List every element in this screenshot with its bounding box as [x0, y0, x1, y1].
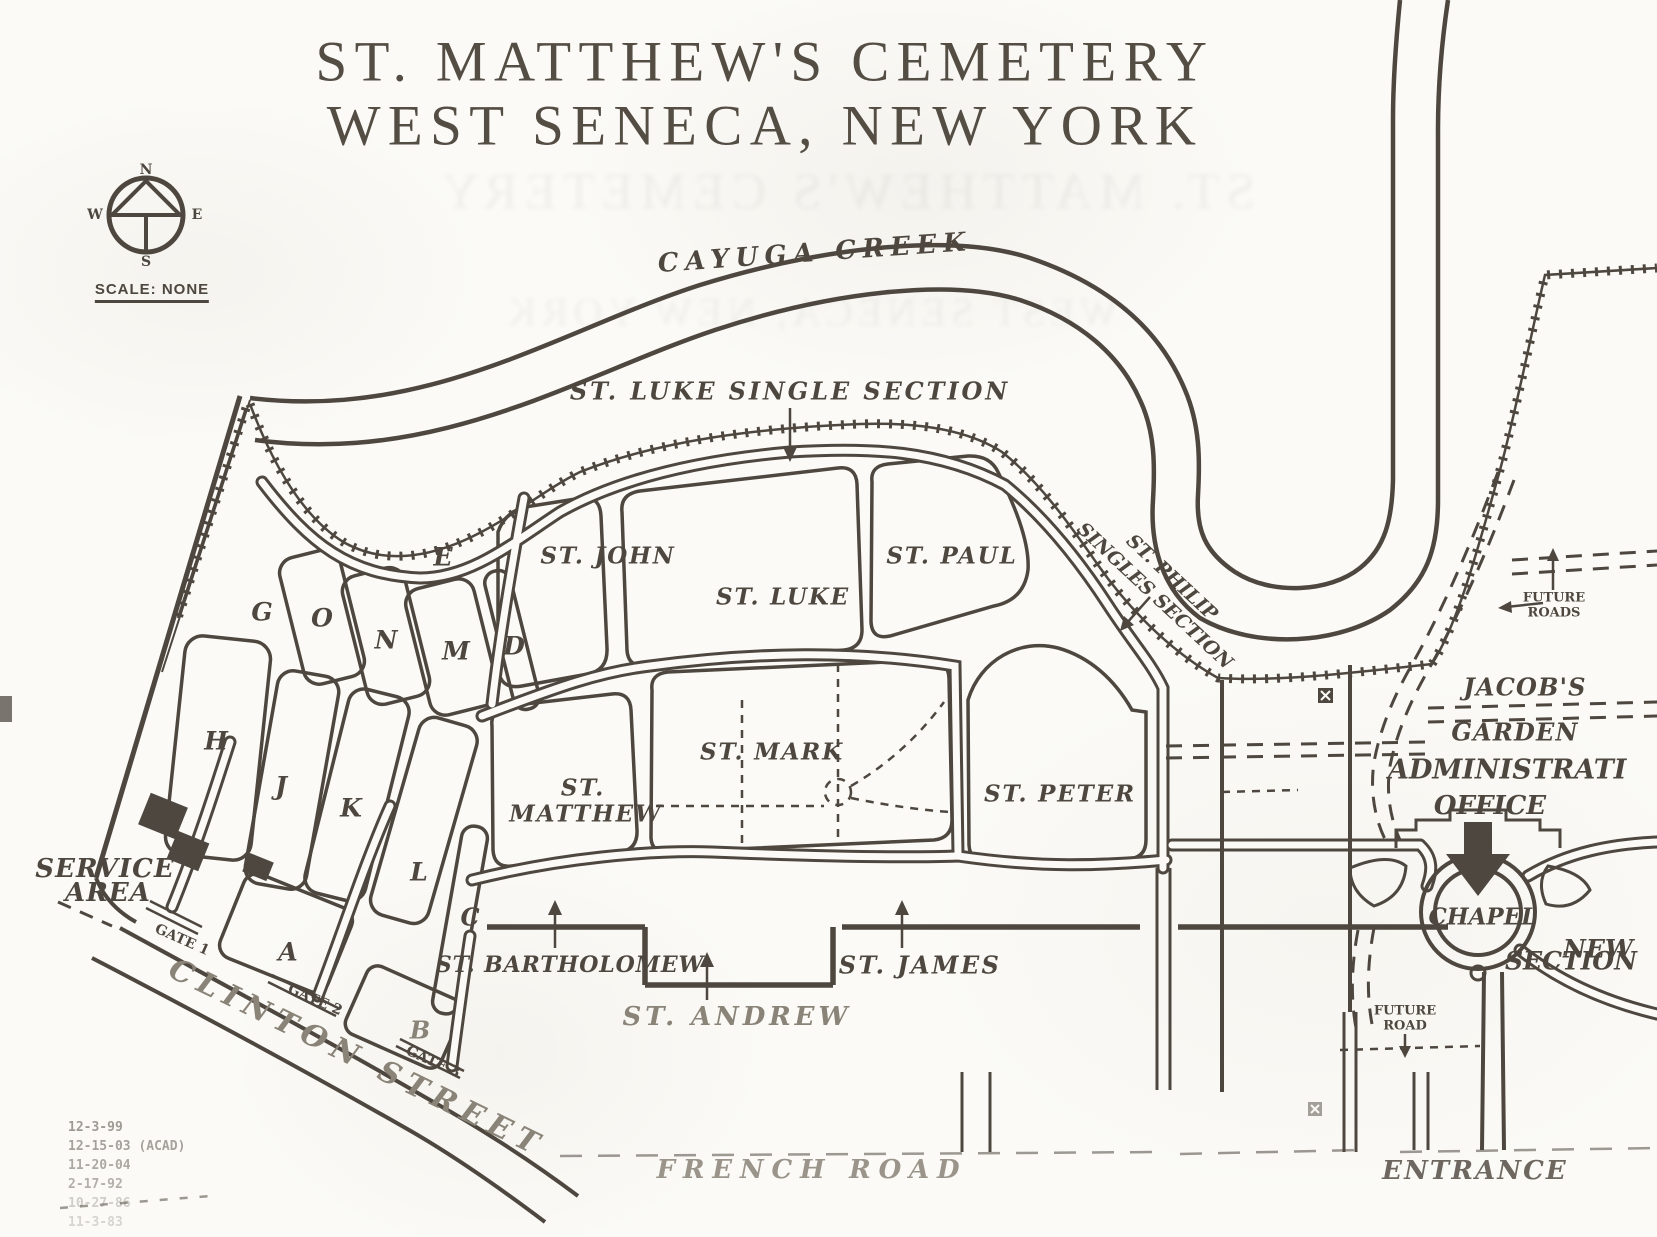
- compass-e: E: [192, 207, 203, 223]
- map-title-line2: WEST SENECA, NEW YORK: [327, 94, 1204, 159]
- jacobs-garden-line2: GARDEN: [1451, 718, 1578, 747]
- revision-entry: 12-15-03 (ACAD): [68, 1137, 185, 1156]
- section-label-l: L: [410, 858, 428, 887]
- edge-mark: [0, 696, 12, 722]
- section-label-j: J: [275, 772, 287, 801]
- st-james-label: ST. JAMES: [839, 951, 1002, 980]
- chapel-label: CHAPEL: [1429, 904, 1538, 931]
- section-label-g: G: [251, 598, 272, 627]
- st-matthew-label-line1: ST.: [561, 775, 605, 802]
- service-area-line2: AREA: [65, 878, 151, 908]
- revision-date-list: 12-3-99 12-15-03 (ACAD) 11-20-04 2-17-92…: [68, 1118, 185, 1232]
- section-label-d: D: [503, 632, 525, 661]
- compass-s: S: [141, 254, 151, 270]
- section-label-k: K: [340, 794, 362, 823]
- section-label-c: C: [460, 903, 479, 932]
- section-label-a: A: [278, 938, 297, 967]
- ghost-title-line1: ST. MATTHEW'S CEMETERY: [435, 163, 1255, 222]
- admin-office-line2: OFFICE: [1434, 791, 1546, 821]
- cemetery-map-scan: ST. MATTHEW'S CEMETERY WEST SENECA, NEW …: [0, 0, 1657, 1237]
- revision-entry: 12-3-99: [68, 1118, 185, 1137]
- st-matthew-label-line2: MATTHEW: [509, 801, 662, 828]
- st-andrew-label: ST. ANDREW: [623, 1002, 852, 1032]
- entrance-label: ENTRANCE: [1382, 1156, 1568, 1186]
- section-label-m: M: [442, 637, 470, 666]
- boxed-x-symbol-south: [1308, 1102, 1322, 1116]
- section-label-h: H: [204, 727, 228, 756]
- new-section-line2: SECTION: [1505, 947, 1637, 976]
- map-symbols: [0, 688, 1333, 1116]
- st-peter-label: ST. PETER: [984, 781, 1136, 808]
- st-luke-single-section-label: ST. LUKE SINGLE SECTION: [570, 377, 1010, 406]
- compass-w: W: [87, 207, 103, 223]
- future-roads-line2: ROADS: [1528, 606, 1581, 621]
- section-label-n: N: [375, 626, 398, 655]
- section-label-b: B: [410, 1016, 430, 1045]
- compass-rose: [109, 178, 183, 252]
- st-mark-label: ST. MARK: [700, 739, 844, 766]
- compass-n: N: [140, 162, 153, 178]
- section-label-e: E: [433, 543, 452, 572]
- map-title-line1: ST. MATTHEW'S CEMETERY: [316, 30, 1215, 95]
- future-road-line1: FUTURE: [1374, 1004, 1436, 1019]
- revision-entry: 11-20-04: [68, 1156, 185, 1175]
- section-label-o: O: [311, 604, 333, 633]
- admin-office-line1: ADMINISTRATI: [1388, 755, 1626, 786]
- st-bartholomew-label: ST. BARTHOLOMEW: [436, 952, 704, 978]
- ghost-title-line2: WEST SENECA, NEW YORK: [502, 289, 1117, 336]
- boxed-x-symbol-north: [1318, 688, 1333, 703]
- admin-arrow: [1446, 822, 1510, 896]
- scale-label: SCALE: NONE: [95, 281, 209, 303]
- st-paul-label: ST. PAUL: [886, 543, 1017, 570]
- future-road-line2: ROAD: [1383, 1019, 1427, 1034]
- st-john-label: ST. JOHN: [540, 543, 675, 570]
- french-road-label: FRENCH ROAD: [657, 1155, 968, 1185]
- revision-entry: 2-17-92: [68, 1175, 185, 1194]
- jacobs-garden-line1: JACOB'S: [1463, 673, 1586, 702]
- revision-entry: 11-3-83: [68, 1213, 185, 1232]
- revision-entry: 10-27-86: [68, 1194, 185, 1213]
- st-luke-label: ST. LUKE: [716, 584, 850, 611]
- future-roads-line1: FUTURE: [1523, 591, 1585, 606]
